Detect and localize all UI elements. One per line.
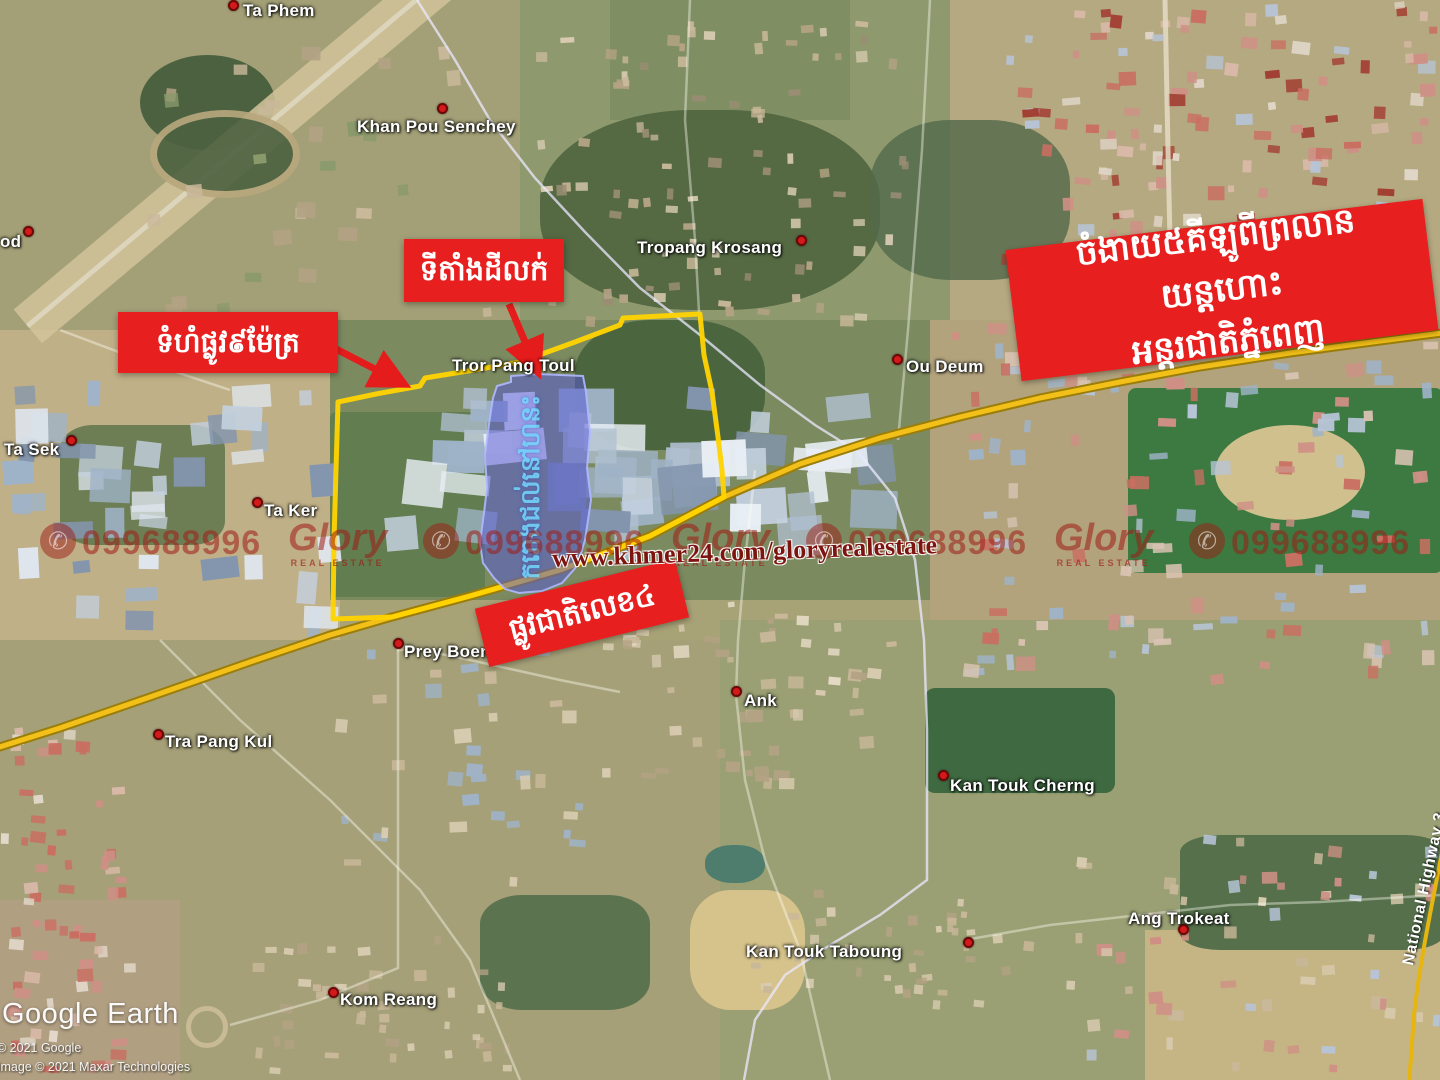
phone-icon: ✆ [1189, 523, 1225, 559]
place-dot-od [23, 226, 34, 237]
place-label-ank: Ank [744, 691, 777, 711]
place-dot-khan-pou-senchey [437, 103, 448, 114]
satellite-map-canvas: ករោងជល់នៅហនះ ✆ 099688996 Glory REAL ESTA… [0, 0, 1440, 1080]
place-dot-tropang-krosang [796, 235, 807, 246]
phone-icon: ✆ [40, 523, 76, 559]
copyright-maxar: Image © 2021 Maxar Technologies [0, 1060, 190, 1074]
place-label-kom-reang: Kom Reang [340, 990, 437, 1010]
place-dot-ank [731, 686, 742, 697]
place-dot-kan-touk-taboung [963, 937, 974, 948]
phone-icon: ✆ [423, 523, 459, 559]
copyright-google: © 2021 Google [0, 1041, 81, 1055]
brand-name: Glory [1054, 517, 1153, 559]
watermark-phone-number: 099688996 [1231, 524, 1410, 563]
place-dot-ta-phem [228, 0, 239, 11]
place-label-tror-pang-toul: Tror Pang Toul [452, 356, 575, 376]
place-label-ta-sek: Ta Sek [4, 440, 59, 460]
place-dot-kan-touk-cherng [938, 770, 949, 781]
brand-subtitle: REAL ESTATE [288, 559, 387, 568]
place-dot-kom-reang [328, 987, 339, 998]
site-location-callout: ទីតាំងដីលក់ [404, 239, 564, 302]
parcel-watermark-text: ករោងជល់នៅហនះ [514, 372, 552, 602]
place-dot-ou-deum [892, 354, 903, 365]
brand-name: Glory [288, 517, 387, 559]
place-label-kan-touk-taboung: Kan Touk Taboung [746, 942, 902, 962]
place-dot-tra-pang-kul [153, 729, 164, 740]
place-label-ou-deum: Ou Deum [906, 357, 984, 377]
place-label-ta-phem: Ta Phem [243, 1, 315, 21]
watermark-phone-number: 099688996 [82, 524, 261, 563]
watermark-brand: Glory REAL ESTATE [1054, 519, 1153, 568]
place-label-ang-trokeat: Ang Trokeat [1128, 909, 1230, 929]
place-dot-prey-boeng [393, 638, 404, 649]
place-label-od-fragment: od [0, 232, 21, 252]
watermark-brand: Glory REAL ESTATE [288, 519, 387, 568]
brand-subtitle: REAL ESTATE [1054, 559, 1153, 568]
place-label-khan-pou-senchey: Khan Pou Senchey [357, 117, 516, 137]
place-label-tropang-krosang: Tropang Krosang [637, 238, 782, 258]
place-label-ta-ker: Ta Ker [264, 501, 317, 521]
place-label-tra-pang-kul: Tra Pang Kul [165, 732, 273, 752]
arrow-road-width [336, 349, 402, 383]
place-label-kan-touk-cherng: Kan Touk Cherng [950, 776, 1095, 796]
road-width-callout: ទំហំផ្លូវ៩ម៉ែត្រ [118, 312, 338, 373]
place-dot-ta-ker [252, 497, 263, 508]
place-dot-ta-sek [66, 435, 77, 446]
google-earth-logo: Google Earth [2, 998, 179, 1031]
